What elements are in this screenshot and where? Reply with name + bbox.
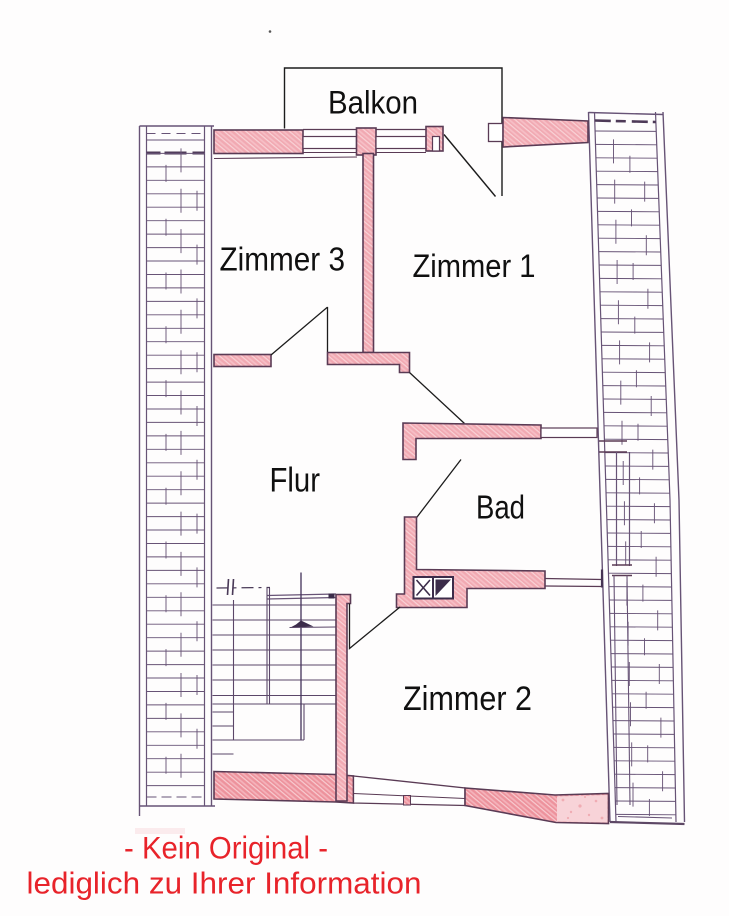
svg-text:Bad: Bad bbox=[476, 489, 525, 526]
svg-text:Balkon: Balkon bbox=[328, 85, 418, 121]
svg-text:Zimmer 3: Zimmer 3 bbox=[220, 241, 346, 278]
svg-text:Zimmer 2: Zimmer 2 bbox=[403, 680, 532, 718]
svg-text:Zimmer 1: Zimmer 1 bbox=[413, 248, 536, 284]
svg-text:lediglich zu Ihrer Information: lediglich zu Ihrer Information bbox=[27, 867, 422, 901]
svg-text:Flur: Flur bbox=[270, 462, 321, 500]
svg-text:- Kein Original -: - Kein Original - bbox=[124, 830, 328, 866]
